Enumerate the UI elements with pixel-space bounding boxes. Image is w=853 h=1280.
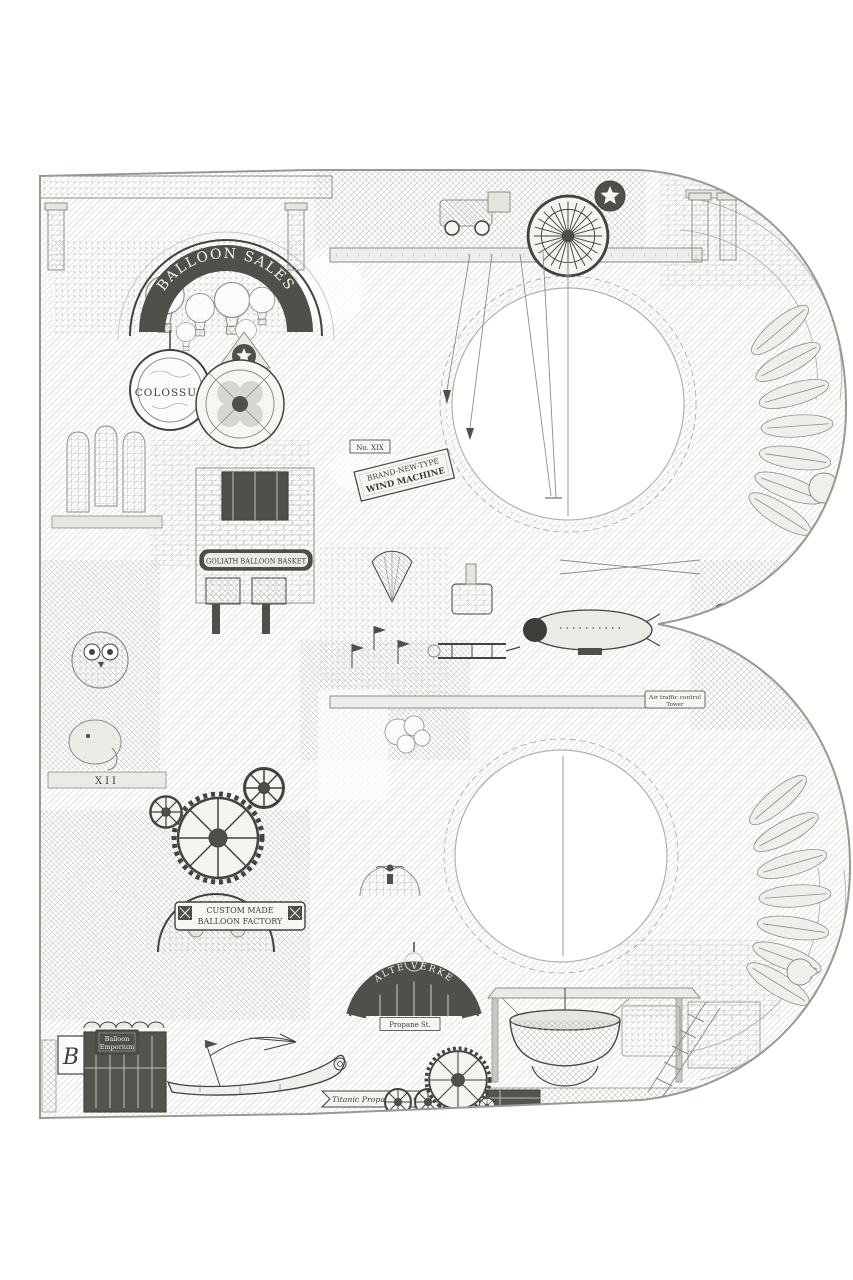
figurehead-face [787,959,813,985]
sign-shop-line1: Balloon [105,1035,130,1043]
sign-colossus-text: COLOSSUS [135,387,205,399]
sign-machine-no: No. XIX [356,444,383,452]
figurehead-face [809,473,839,503]
street-sign: Propane St. [380,1018,440,1031]
pulley-wheel-icon [245,769,284,808]
artwork-letter-b: BALLOON SALES COLOSSUS [0,0,853,1280]
ground-line [90,1112,760,1122]
top-beam [330,248,702,262]
frieze-band: XII [48,772,166,788]
sign-shop-line2: Emporium [100,1043,135,1051]
sign-tower-line2: Tower [666,702,684,708]
sign-tower-line1: Air traffic control [648,695,701,701]
tower-sign: Air traffic control Tower [645,691,705,708]
mid-beam [330,696,690,708]
monogram-sign: B [58,1036,84,1074]
sign-custom-line2: BALLOON FACTORY [198,917,283,926]
sign-street-text: Propane St. [389,1021,431,1029]
sign-custom-line1: CUSTOM MADE [206,906,273,915]
illustration-svg: BALLOON SALES COLOSSUS [0,0,853,1280]
rose-window [196,360,284,448]
scroll-spiral [714,604,730,620]
awning [84,1022,164,1028]
sign-frieze-text: XII [95,776,119,787]
sign-goliath-text: GOLIATH BALLOON BASKET [206,557,306,566]
sign-monogram-text: B [62,1045,79,1070]
small-gear-icon [150,796,181,827]
star-roundel [595,181,625,211]
owl-balloon [72,632,128,688]
shop-sign: Balloon Emporium [96,1030,138,1054]
